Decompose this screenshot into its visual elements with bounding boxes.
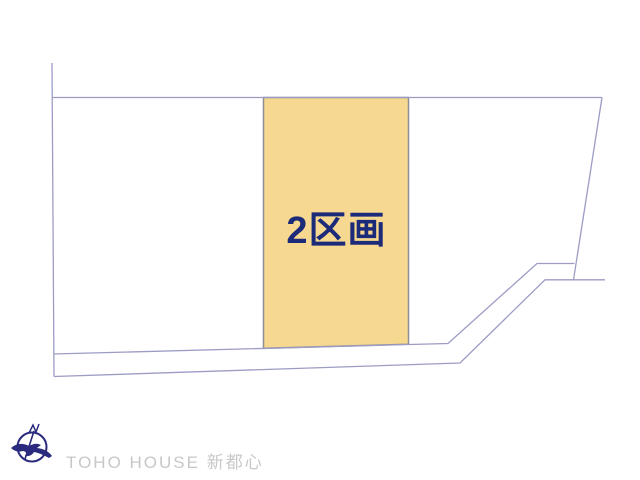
boundary-right-diagonal [574, 98, 603, 280]
logo-text: TOHO HOUSE 新都心 [66, 448, 264, 473]
parcel-label: 2区画 [264, 201, 409, 251]
plot-diagram: 2区画 TOHO HOUSE 新都心 [0, 0, 640, 480]
boundary-left [52, 63, 54, 377]
company-logo: TOHO HOUSE 新都心 [10, 422, 264, 470]
compass-bird-icon [10, 422, 52, 466]
